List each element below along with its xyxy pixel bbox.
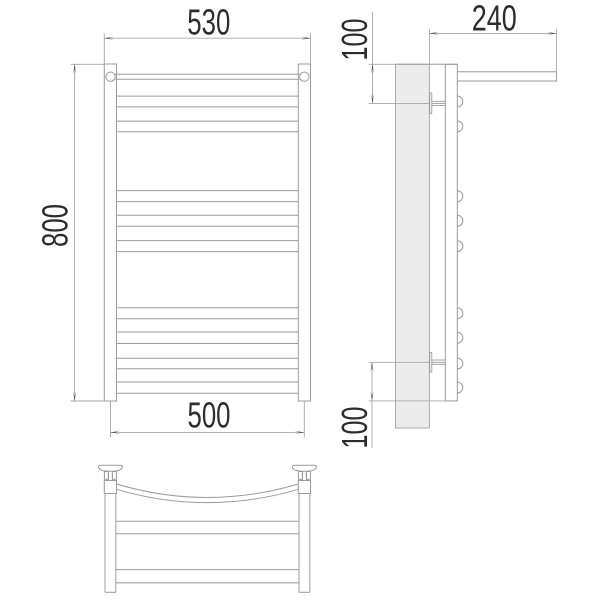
svg-text:100: 100 [334,19,375,61]
svg-text:530: 530 [187,2,230,43]
svg-text:240: 240 [472,0,517,38]
svg-text:500: 500 [188,395,231,436]
svg-text:100: 100 [334,407,375,449]
svg-text:800: 800 [35,204,76,247]
